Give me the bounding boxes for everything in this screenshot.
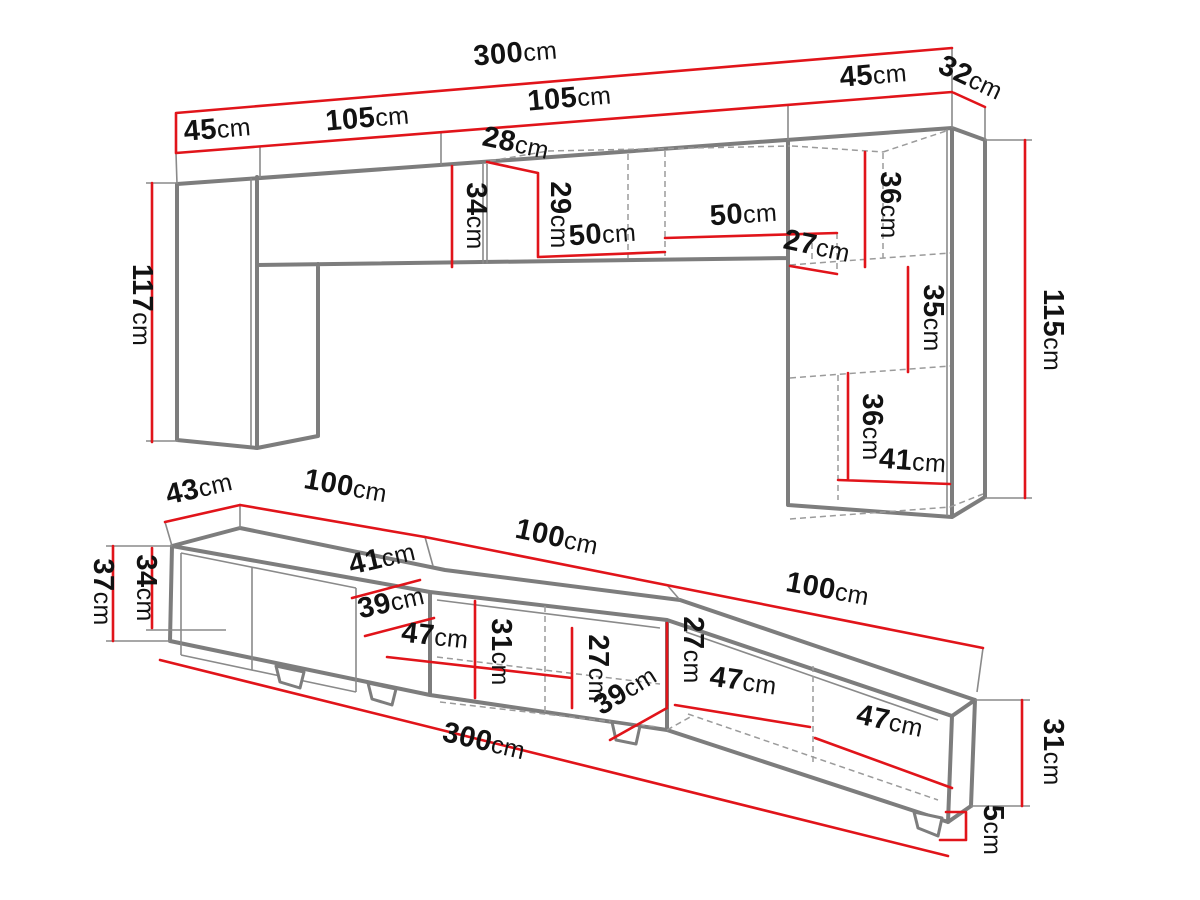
dim-wall-door-height: 34cm	[460, 182, 492, 249]
dim-base-top-depth: 41cm	[346, 535, 419, 581]
dim-wall-left-height: 117cm	[126, 264, 158, 346]
dim-base-niche-a-height: 31cm	[485, 618, 517, 685]
dim-base-end-height: 31cm	[1037, 718, 1069, 785]
dim-wall-right-height: 115cm	[1037, 289, 1069, 371]
dim-base-depth: 43cm	[163, 465, 236, 511]
dim-wall-right-width: 45cm	[838, 56, 908, 94]
dim-wall-cabinet-a-width: 105cm	[324, 98, 410, 137]
dim-base-niche-c-height: 27cm	[677, 616, 709, 683]
dim-base-shelf-a-width: 47cm	[400, 617, 470, 656]
dim-base-section-b-width: 100cm	[513, 513, 602, 562]
dim-wall-bottom-width: 41cm	[878, 443, 947, 480]
dim-base-total-width: 300cm	[440, 716, 529, 766]
dim-wall-shelf-top-height: 36cm	[874, 171, 906, 238]
furniture-dimension-diagram: 300cm 45cm 105cm 105cm 45cm 32cm 28cm 34…	[0, 0, 1200, 900]
dim-base-foot-height: 5cm	[977, 805, 1009, 856]
dim-wall-shelf-a-width: 50cm	[568, 216, 637, 253]
dim-base-body-height: 34cm	[130, 554, 162, 621]
dim-base-section-c-width: 100cm	[784, 566, 872, 612]
dim-wall-niche-b-depth: 27cm	[781, 224, 853, 269]
dim-base-shelf-b-width: 47cm	[708, 661, 779, 702]
tv-stand-drawing: 43cm 100cm 100cm 100cm 37cm 34cm 41cm 39…	[87, 463, 1069, 856]
wall-unit-dimension-lines	[152, 48, 1025, 498]
wall-unit-drawing: 300cm 45cm 105cm 105cm 45cm 32cm 28cm 34…	[126, 33, 1069, 519]
dim-wall-shelf-mid-height: 35cm	[917, 284, 949, 351]
dim-wall-left-width: 45cm	[182, 110, 252, 148]
dim-wall-shelf-b-width: 50cm	[709, 196, 778, 233]
dim-wall-right-depth: 32cm	[934, 49, 1008, 106]
dim-base-section-a-width: 100cm	[302, 463, 390, 509]
dim-wall-total-width: 300cm	[472, 33, 558, 72]
dim-wall-cabinet-b-width: 105cm	[526, 78, 612, 117]
dim-base-total-height: 37cm	[87, 558, 119, 625]
